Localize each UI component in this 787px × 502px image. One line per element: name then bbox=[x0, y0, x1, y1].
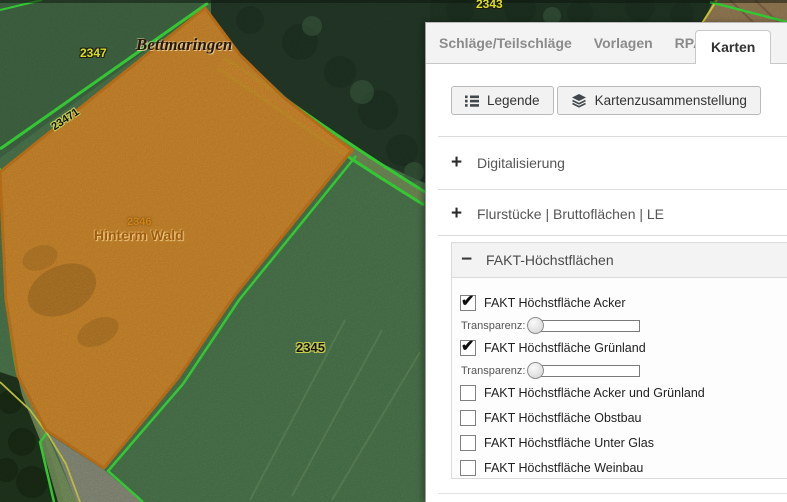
app-window: 2347 2343 Bettmaringen 23471 2346 Hinter… bbox=[0, 0, 787, 502]
slider-track[interactable] bbox=[534, 320, 640, 332]
section-fakt-hoechstflaechen[interactable]: − FAKT-Höchstflächen bbox=[451, 242, 787, 278]
checkbox-fakt-obstbau[interactable] bbox=[460, 410, 476, 426]
tab-schlaege-teilschlaege[interactable]: Schläge/Teilschläge bbox=[439, 35, 572, 51]
checkbox-label: FAKT Höchstfläche Acker bbox=[484, 296, 626, 310]
checkbox-label: FAKT Höchstfläche Obstbau bbox=[484, 411, 642, 425]
map-label-place-name: Bettmaringen bbox=[136, 36, 232, 53]
transparency-label: Transparenz: bbox=[461, 320, 525, 332]
section-label: Digitalisierung bbox=[477, 155, 565, 171]
legend-button[interactable]: Legende bbox=[451, 86, 554, 115]
expand-plus-icon[interactable]: + bbox=[451, 207, 465, 221]
checkbox-fakt-unter-glas[interactable] bbox=[460, 435, 476, 451]
checkbox-label: FAKT Höchstfläche Grünland bbox=[484, 341, 646, 355]
checkbox-label: FAKT Höchstfläche Weinbau bbox=[484, 461, 643, 475]
slider-track[interactable] bbox=[534, 365, 640, 377]
expand-plus-icon[interactable]: + bbox=[451, 156, 465, 170]
layer-row-weinbau: FAKT Höchstfläche Weinbau bbox=[460, 460, 787, 476]
checkbox-label: FAKT Höchstfläche Acker und Grünland bbox=[484, 386, 705, 400]
map-label-parcel-2347: 2347 bbox=[80, 47, 107, 59]
tab-karten-active[interactable]: Karten bbox=[695, 30, 771, 64]
layer-row-acker: ✔ FAKT Höchstfläche Acker bbox=[460, 295, 787, 311]
checkbox-fakt-acker[interactable]: ✔ bbox=[460, 295, 476, 311]
tab-bar: Schläge/Teilschläge Vorlagen RPA Karten bbox=[426, 23, 787, 64]
map-toolbar: Legende Kartenzusammenstellung bbox=[451, 86, 787, 115]
map-label-parcel-2343: 2343 bbox=[476, 0, 503, 10]
fakt-layer-list: ✔ FAKT Höchstfläche Acker Transparenz: ✔… bbox=[451, 278, 787, 479]
checkbox-fakt-gruenland[interactable]: ✔ bbox=[460, 340, 476, 356]
transparency-slider-gruenland[interactable] bbox=[527, 362, 643, 379]
checkbox-label: FAKT Höchstfläche Unter Glas bbox=[484, 436, 654, 450]
layers-icon bbox=[571, 94, 587, 108]
check-icon: ✔ bbox=[461, 291, 474, 311]
layer-row-acker-und-gruenland: FAKT Höchstfläche Acker und Grünland bbox=[460, 385, 787, 401]
section-label: FAKT-Höchstflächen bbox=[486, 252, 614, 268]
transparency-slider-acker[interactable] bbox=[527, 317, 643, 334]
map-composition-button-label: Kartenzusammenstellung bbox=[595, 93, 747, 108]
divider bbox=[438, 493, 787, 494]
divider bbox=[438, 235, 787, 236]
checkbox-fakt-weinbau[interactable] bbox=[460, 460, 476, 476]
section-flurstuecke-bruttoflaechen-le[interactable]: + Flurstücke | Bruttoflächen | LE bbox=[426, 190, 787, 235]
layer-row-gruenland: ✔ FAKT Höchstfläche Grünland bbox=[460, 340, 787, 356]
collapse-minus-icon[interactable]: − bbox=[461, 253, 475, 267]
section-digitalisierung[interactable]: + Digitalisierung bbox=[426, 137, 787, 189]
map-composition-button[interactable]: Kartenzusammenstellung bbox=[557, 86, 761, 115]
side-panel: Schläge/Teilschläge Vorlagen RPA Karten … bbox=[425, 22, 787, 502]
legend-button-label: Legende bbox=[487, 93, 540, 108]
section-label: Flurstücke | Bruttoflächen | LE bbox=[477, 206, 664, 222]
map-label-parcel-2345: 2345 bbox=[296, 341, 325, 354]
map-label-field-name: Hinterm Wald bbox=[94, 228, 184, 242]
transparency-slider-row-gruenland: Transparenz: bbox=[461, 362, 787, 379]
checkbox-fakt-acker-und-gruenland[interactable] bbox=[460, 385, 476, 401]
check-icon: ✔ bbox=[461, 336, 474, 356]
layer-row-unter-glas: FAKT Höchstfläche Unter Glas bbox=[460, 435, 787, 451]
tab-vorlagen[interactable]: Vorlagen bbox=[594, 35, 653, 51]
list-icon bbox=[465, 94, 479, 108]
transparency-slider-row-acker: Transparenz: bbox=[461, 317, 787, 334]
transparency-label: Transparenz: bbox=[461, 365, 525, 377]
layer-row-obstbau: FAKT Höchstfläche Obstbau bbox=[460, 410, 787, 426]
